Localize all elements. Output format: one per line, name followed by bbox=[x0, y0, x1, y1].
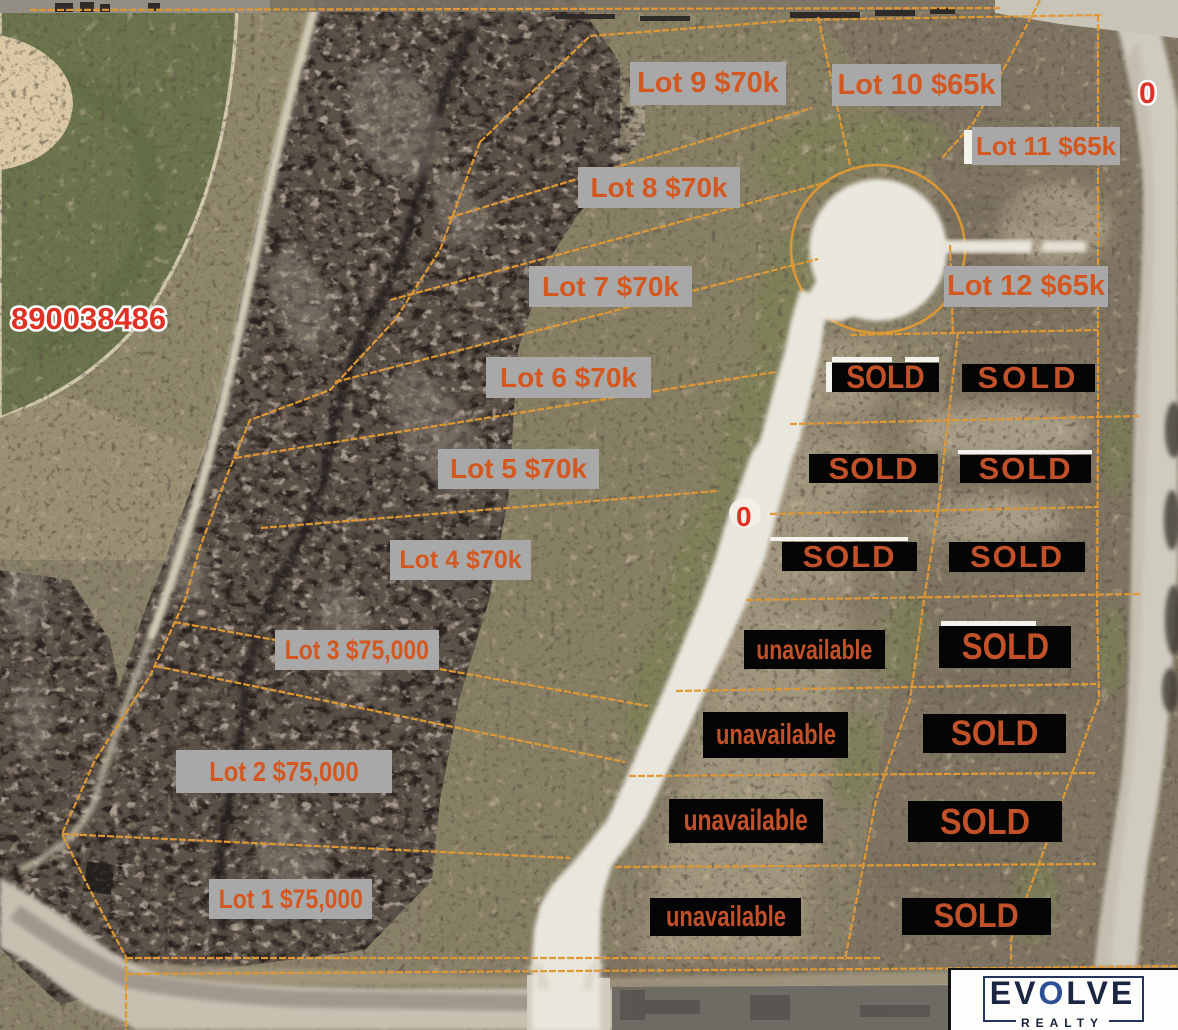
svg-text:0: 0 bbox=[1139, 77, 1156, 110]
svg-text:890038486: 890038486 bbox=[11, 301, 166, 336]
svg-text:0: 0 bbox=[736, 501, 752, 532]
